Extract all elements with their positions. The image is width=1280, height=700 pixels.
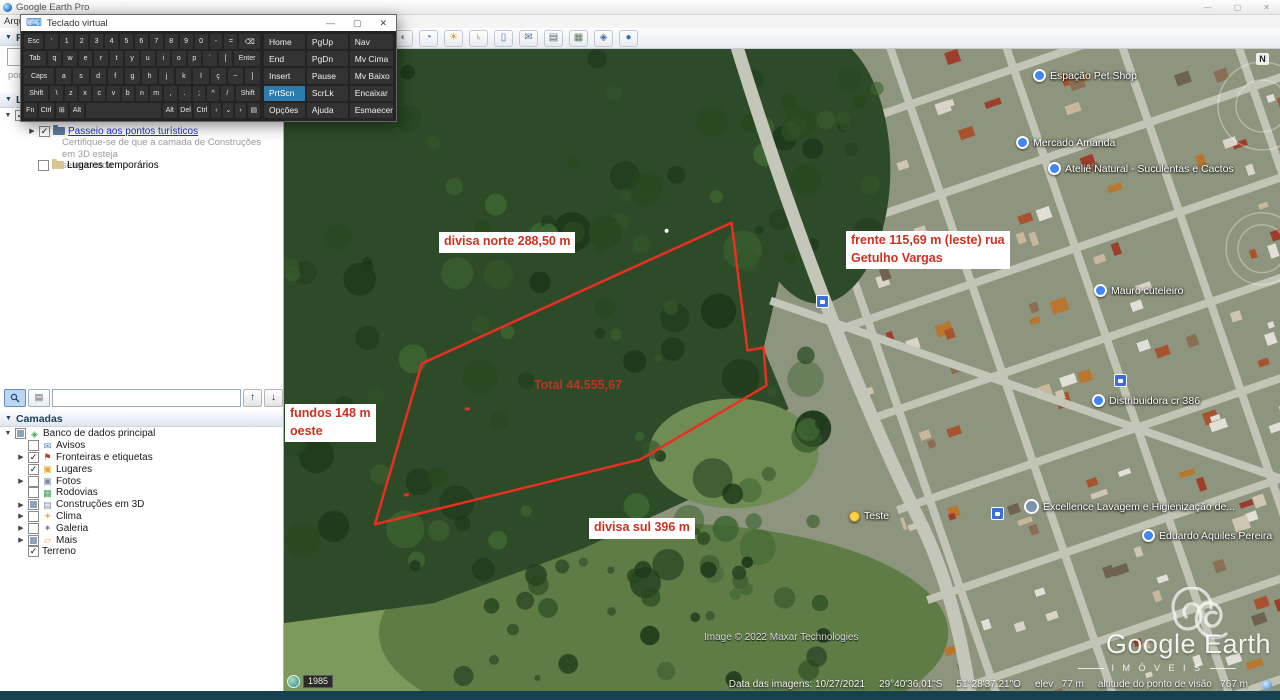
key-o[interactable]: o [172,51,186,66]
key-encaixar[interactable]: Encaixar [350,86,393,101]
checkbox-unchecked[interactable] [28,511,39,522]
layer-label: Terreno [42,546,76,557]
key-esmaecer[interactable]: Esmaecer [350,103,393,118]
taskbar-strip [0,691,1280,700]
latitude-value: 29°40'36.01"S [879,679,942,690]
places-item-temporary[interactable]: Lugares temporários [38,159,159,171]
expand-arrow-icon[interactable]: ▶ [17,477,25,485]
key-'[interactable]: ' [45,34,58,49]
key-‹[interactable]: ‹ [211,103,221,118]
expand-arrow-icon[interactable]: ▼ [4,112,12,119]
email-button[interactable]: ✉ [519,30,538,47]
photos-icon: ▣ [42,476,53,486]
key-n[interactable]: n [136,86,148,101]
eye-altitude-value: 767 m [1220,679,1248,690]
key-pause[interactable]: Pause [307,68,348,83]
gallery-icon: ✶ [42,523,53,533]
layer-row-rodovias[interactable]: ▦Rodovias [0,487,283,499]
keyboard-close-button[interactable]: ✕ [379,18,387,29]
key-pgdn[interactable]: PgDn [307,51,348,66]
status-bar: Data das imagens: 10/27/2021 29°40'36.01… [729,679,1272,690]
key-7[interactable]: 7 [150,34,163,49]
layers-panel-header[interactable]: ▼ Camadas [0,411,283,427]
browse-mode-button[interactable]: ▤ [28,389,50,407]
print-button[interactable]: ▤ [544,30,563,47]
key-,[interactable]: , [164,86,176,101]
key-ajuda[interactable]: Ajuda [307,103,348,118]
historical-imagery-icon: ◔ [425,33,431,43]
google-earth-watermark: Google Earth [1106,629,1271,660]
minimize-button[interactable]: — [1204,3,1212,12]
checkbox-checked[interactable]: ✓ [28,464,39,475]
imoveis-watermark: I M Ó V E I S [1078,663,1236,673]
sunlight-button[interactable]: ☀ [444,30,463,47]
down-arrow-icon: ↓ [271,392,276,403]
key-u[interactable]: u [141,51,155,66]
switch-planet-icon: ♄ [475,33,483,43]
close-button[interactable]: ✕ [1263,3,1270,12]
collapse-triangle-icon: ▼ [5,415,12,422]
key-q[interactable]: q [48,51,62,66]
previous-result-button[interactable]: ↑ [243,389,262,407]
key-/[interactable]: / [221,86,233,101]
search-mode-button[interactable] [4,389,26,407]
key-;[interactable]: ; [193,86,205,101]
checkbox-unchecked[interactable] [28,487,39,498]
key-mv-baixo[interactable]: Mv Baixo [350,68,393,83]
key-prtscn[interactable]: PrtScn [264,86,305,101]
key-insert[interactable]: Insert [264,68,305,83]
elevation-label: elev [1035,679,1053,690]
checkbox-checked[interactable]: ✓ [28,452,39,463]
key-fn[interactable]: Fn [24,103,37,118]
key-opções[interactable]: Opções [264,103,305,118]
layer-row-constru-es-em-3d[interactable]: ▶▤Construções em 3D [0,499,283,511]
keyboard-maximize-button[interactable]: ▢ [353,18,362,29]
key-\[interactable]: \ [50,86,62,101]
layer-row-lugares[interactable]: ✓▣Lugares [0,463,283,475]
view-in-google-maps-button[interactable]: ◈ [594,30,613,47]
layer-row-galeria[interactable]: ▶✶Galeria [0,522,283,534]
imagery-date: Data das imagens: 10/27/2021 [729,679,865,690]
borders-icon: ⚑ [42,452,53,462]
keyboard-side-keys: HomePgUpNavEndPgDnMv CimaInsertPauseMv B… [264,34,393,118]
checkbox-unchecked[interactable] [38,160,49,171]
toolbar: ◐◔☀♄▯✉▤▦◈● [284,28,1280,49]
next-result-button[interactable]: ↓ [264,389,283,407]
key-4[interactable]: 4 [105,34,118,49]
title-bar: Google Earth Pro — ▢ ✕ [0,0,1280,15]
layer-row-terreno[interactable]: ✓Terreno [0,546,283,558]
roads-icon: ▦ [42,488,53,498]
book-icon: ▤ [35,392,44,403]
key-5[interactable]: 5 [120,34,133,49]
layer-row-clima[interactable]: ▶☀Clima [0,511,283,523]
key-t[interactable]: t [110,51,124,66]
key-h[interactable]: h [142,68,157,83]
key-s[interactable]: s [73,68,88,83]
layer-label: Fronteiras e etiquetas [56,452,153,463]
key-ctrl[interactable]: Ctrl [39,103,54,118]
expand-arrow-icon[interactable]: ▶ [17,501,25,509]
key-caps[interactable]: Caps [24,68,54,83]
checkbox-checked[interactable]: ✓ [28,546,39,557]
key-.[interactable]: . [179,86,191,101]
key-l[interactable]: l [193,68,208,83]
key-][interactable]: ] [245,68,260,83]
checkbox-partial[interactable] [28,499,39,510]
key-=[interactable]: = [224,34,237,49]
google-earth-pro-window: Google Earth Pro — ▢ ✕ Arquivo ▼ Pesquis… [0,0,1280,700]
checkbox-unchecked[interactable] [28,440,39,451]
layer-label: Construções em 3D [56,499,144,510]
annotation-divisa-norte[interactable]: divisa norte 288,50 m [439,232,575,253]
key-c[interactable]: c [93,86,105,101]
key-m[interactable]: m [150,86,162,101]
key-home[interactable]: Home [264,34,305,49]
more-icon: ▱ [42,535,53,545]
key-shift[interactable]: Shift [236,86,260,101]
annotation-layer: divisa norte 288,50 mfrente 115,69 m (le… [284,49,1280,691]
earth-icon: ● [625,33,631,43]
places-item-passeio[interactable]: ▶ ✓ Passeio aos pontos turísticos [28,125,198,137]
expand-arrow-icon[interactable]: ▶ [17,536,25,544]
layer-label: Banco de dados principal [43,428,155,439]
window-title: Google Earth Pro [16,2,89,13]
maximize-button[interactable]: ▢ [1234,3,1242,12]
layer-label: Avisos [56,440,85,451]
layer-row-fronteiras-e-etiquetas[interactable]: ▶✓⚑Fronteiras e etiquetas [0,452,283,464]
layers-panel-title: Camadas [16,413,63,425]
key-alt[interactable]: Alt [163,103,177,118]
layer-label: Galeria [56,523,88,534]
layer-label: Rodovias [56,487,98,498]
historical-imagery-indicator[interactable]: 1985 [287,675,333,688]
key-2[interactable]: 2 [75,34,88,49]
layers-search-row: ▤ ↑ ↓ [0,387,283,408]
earth-button[interactable]: ● [619,30,638,47]
keyboard-icon: ⌨ [26,18,42,28]
collapse-triangle-icon: ▼ [5,34,12,41]
key-j[interactable]: j [159,68,174,83]
imagery-copyright: Image © 2022 Maxar Technologies [704,632,859,643]
magnifier-icon [10,393,20,403]
layer-label: Clima [56,511,82,522]
key-b[interactable]: b [122,86,134,101]
checkbox-partial[interactable] [15,428,26,439]
key-8[interactable]: 8 [165,34,178,49]
layer-label: Mais [56,535,77,546]
key-›[interactable]: › [235,103,245,118]
streaming-globe-icon [1262,680,1272,690]
key--[interactable]: - [210,34,223,49]
key-⊞[interactable]: ⊞ [56,103,69,118]
key-x[interactable]: x [79,86,91,101]
virtual-keyboard-window[interactable]: ⌨ Teclado virtual — ▢ ✕ Esc'1234567890-=… [20,14,397,122]
key-´[interactable]: ´ [203,51,217,66]
folder-icon [52,161,64,169]
email-icon: ✉ [524,33,532,43]
key-y[interactable]: y [125,51,139,66]
places-item-link[interactable]: Passeio aos pontos turísticos [68,126,198,137]
key-pgup[interactable]: PgUp [307,34,348,49]
key-~[interactable]: ~ [228,68,243,83]
layer-row-mais[interactable]: ▶▱Mais [0,534,283,546]
key-esc[interactable]: Esc [24,34,43,49]
key-6[interactable]: 6 [135,34,148,49]
key-▤[interactable]: ▤ [248,103,261,118]
annotation-frente-leste[interactable]: frente 115,69 m (leste) ruaGetulho Varga… [846,231,1010,269]
total-area-label[interactable]: Total 44.555,67 [534,378,622,392]
key-i[interactable]: i [157,51,171,66]
key-f[interactable]: f [108,68,123,83]
key-a[interactable]: a [56,68,71,83]
key-enter[interactable]: Enter [234,51,260,66]
key-1[interactable]: 1 [60,34,73,49]
expand-arrow-icon[interactable]: ▶ [28,127,36,135]
switch-planet-button[interactable]: ♄ [469,30,488,47]
buildings-icon: ▤ [42,500,53,510]
expand-arrow-icon[interactable]: ▶ [17,512,25,520]
view-in-google-maps-icon: ◈ [600,33,608,43]
key-w[interactable]: w [63,51,77,66]
map-viewport[interactable]: N Espação Pet ShopMercado AmandaAteliê N… [284,49,1280,691]
checkbox-partial[interactable] [28,535,39,546]
historical-imagery-button[interactable]: ◔ [419,30,438,47]
key-[[interactable]: [ [219,51,233,66]
places-icon: ▣ [42,464,53,474]
key-ctrl[interactable]: Ctrl [194,103,209,118]
key-alt[interactable]: Alt [70,103,84,118]
imagery-year-badge: 1985 [303,675,333,688]
layer-label: Lugares [56,464,92,475]
app-globe-icon [3,3,12,12]
checkbox-unchecked[interactable] [28,523,39,534]
key-p[interactable]: p [188,51,202,66]
save-image-button[interactable]: ▦ [569,30,588,47]
key-scrlk[interactable]: ScrLk [307,86,348,101]
key-tab[interactable]: Tab [24,51,46,66]
keyboard-window-title: Teclado virtual [47,18,108,29]
weather-icon: ☀ [42,511,53,521]
key-nav[interactable]: Nav [350,34,393,49]
sunlight-icon: ☀ [449,33,458,43]
places-temporary-label: Lugares temporários [67,160,159,171]
key-space[interactable] [86,103,161,118]
collapse-triangle-icon: ▼ [5,96,12,103]
key-del[interactable]: Del [179,103,193,118]
key-3[interactable]: 3 [90,34,103,49]
ruler-button[interactable]: ▯ [494,30,513,47]
ruler-icon: ▯ [501,33,507,43]
layer-label: Fotos [56,476,81,487]
key-z[interactable]: z [65,86,77,101]
key-9[interactable]: 9 [180,34,193,49]
key-0[interactable]: 0 [195,34,208,49]
keyboard-main-keys: Esc'1234567890-=⌫Tabqwertyuiop´[EnterCap… [24,34,260,118]
key-e[interactable]: e [79,51,93,66]
expand-arrow-icon[interactable]: ▶ [17,524,25,532]
key-end[interactable]: End [264,51,305,66]
key-g[interactable]: g [125,68,140,83]
print-icon: ▤ [549,33,558,43]
database-icon: ◈ [29,429,40,439]
elevation-value: 77 m [1062,679,1084,690]
record-tour-icon: ◐ [400,33,406,43]
key-⌫[interactable]: ⌫ [239,34,260,49]
key-ç[interactable]: ç [211,68,226,83]
keyboard-title-bar[interactable]: ⌨ Teclado virtual — ▢ ✕ [21,15,396,31]
keyboard-minimize-button[interactable]: — [326,18,335,29]
save-image-icon: ▦ [574,33,583,43]
longitude-value: 51°28'37.21"O [956,679,1021,690]
key-⌄[interactable]: ⌄ [223,103,233,118]
annotation-fundos-oeste[interactable]: fundos 148 moeste [285,404,376,442]
key-r[interactable]: r [94,51,108,66]
annotation-divisa-sul[interactable]: divisa sul 396 m [589,518,695,539]
sidebar: ▼ Pesquisar por e ▼ Lugares ▼ ✓ ▶ ✓ Pass… [0,28,284,691]
key-k[interactable]: k [176,68,191,83]
key-v[interactable]: v [107,86,119,101]
expand-arrow-icon[interactable]: ▶ [17,453,25,461]
key-d[interactable]: d [91,68,106,83]
key-^[interactable]: ^ [207,86,219,101]
layer-row-fotos[interactable]: ▶▣Fotos [0,475,283,487]
layers-filter-input[interactable] [52,389,241,407]
layer-row-banco-de-dados-principal[interactable]: ▼◈Banco de dados principal [0,428,283,440]
checkbox-checked[interactable]: ✓ [39,126,50,137]
eye-altitude-label: altitude do ponto de visão [1098,679,1212,690]
announce-icon: ✉ [42,441,53,451]
history-clock-icon [287,675,300,688]
up-arrow-icon: ↑ [250,392,255,403]
checkbox-unchecked[interactable] [28,476,39,487]
layers-tree: ▼◈Banco de dados principal✉Avisos▶✓⚑Fron… [0,428,283,558]
folder-icon [53,127,65,135]
expand-arrow-icon[interactable]: ▼ [4,430,12,437]
key-mv-cima[interactable]: Mv Cima [350,51,393,66]
layer-row-avisos[interactable]: ✉Avisos [0,440,283,452]
key-shift[interactable]: Shift [24,86,48,101]
